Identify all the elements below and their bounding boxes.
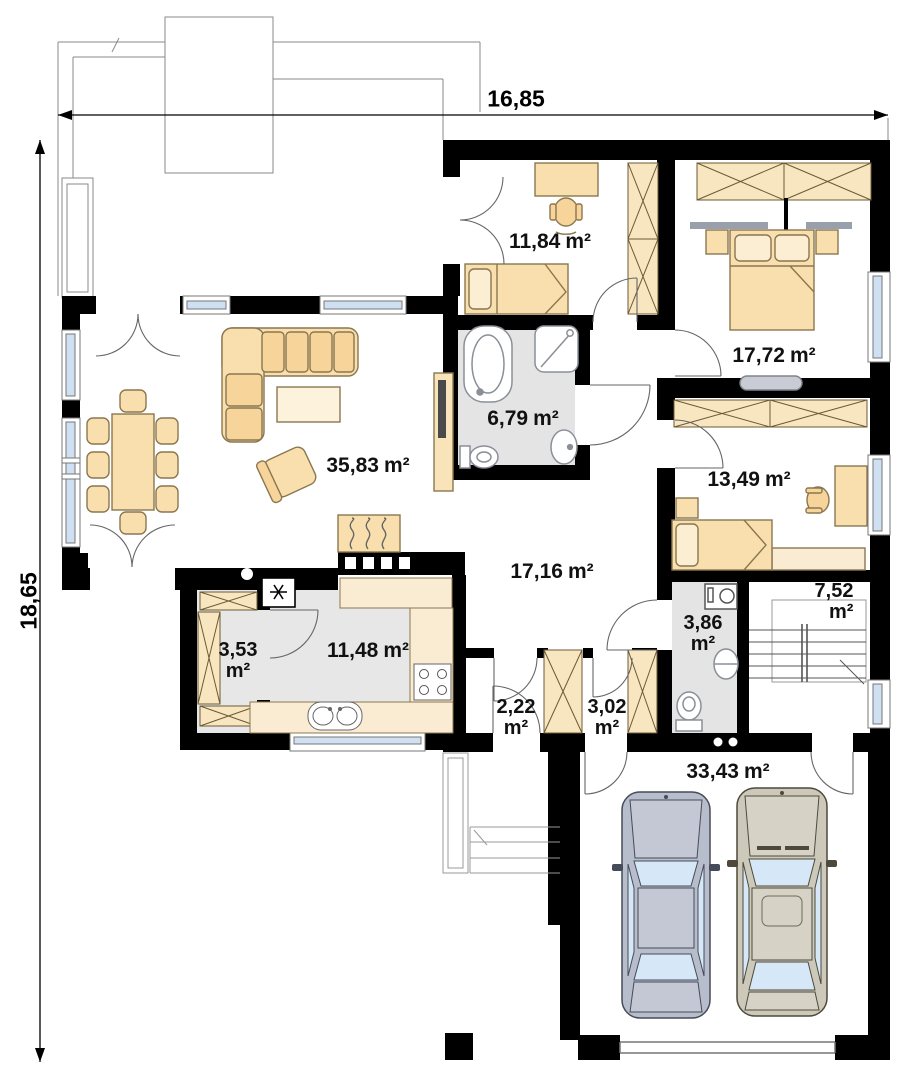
room-label-vestibule: 2,22m² — [497, 697, 536, 739]
room-label-corridor: 3,02m² — [588, 697, 627, 739]
desk — [835, 466, 867, 526]
tv — [438, 380, 446, 438]
desk-chair — [554, 198, 578, 226]
toilet-tank — [460, 446, 470, 468]
dining-table — [112, 414, 154, 510]
car-right — [727, 788, 837, 1016]
room-label-hall: 17,16m² — [510, 561, 593, 583]
garage-door — [620, 1042, 835, 1053]
room-label-bedroom-1: 11,84m² — [509, 231, 591, 253]
room-label-pantry: 3,53m² — [219, 640, 258, 682]
room-label-wc: 3,86m² — [684, 613, 723, 655]
room-label-bedroom-2: 13,49m² — [707, 469, 790, 491]
fireplace — [338, 515, 410, 569]
porch — [443, 753, 560, 873]
room-label-living-room: 35,83m² — [326, 455, 409, 477]
floor-plan: 16,85 18,65 11,84m² 17,72m² 6,79m² 35,83… — [0, 0, 907, 1080]
room-label-master-bedroom: 17,72m² — [732, 345, 815, 367]
nightstand — [676, 498, 698, 518]
car-left — [612, 792, 720, 1018]
dimension-height-label: 18,65 — [16, 572, 43, 630]
armchair — [255, 443, 319, 504]
radiator — [740, 376, 802, 390]
low-cabinet — [772, 548, 865, 570]
living-room-furniture — [87, 328, 453, 534]
wall-vent — [714, 738, 723, 747]
nightstand — [816, 230, 838, 254]
toilet-tank — [676, 720, 702, 731]
dimension-width-label: 16,85 — [487, 86, 545, 113]
wall-vent — [729, 738, 738, 747]
room-label-bathroom: 6,79m² — [487, 408, 559, 430]
nightstand — [706, 230, 728, 254]
chimney-outline — [62, 17, 273, 298]
floor-plan-drawing — [0, 0, 907, 1080]
cooktop-icon — [414, 664, 451, 700]
room-label-garage: 33,43m² — [686, 761, 769, 783]
desk — [535, 163, 598, 196]
room-label-kitchen: 11,48m² — [327, 640, 409, 662]
room-label-staircase: 7,52m² — [815, 581, 854, 623]
